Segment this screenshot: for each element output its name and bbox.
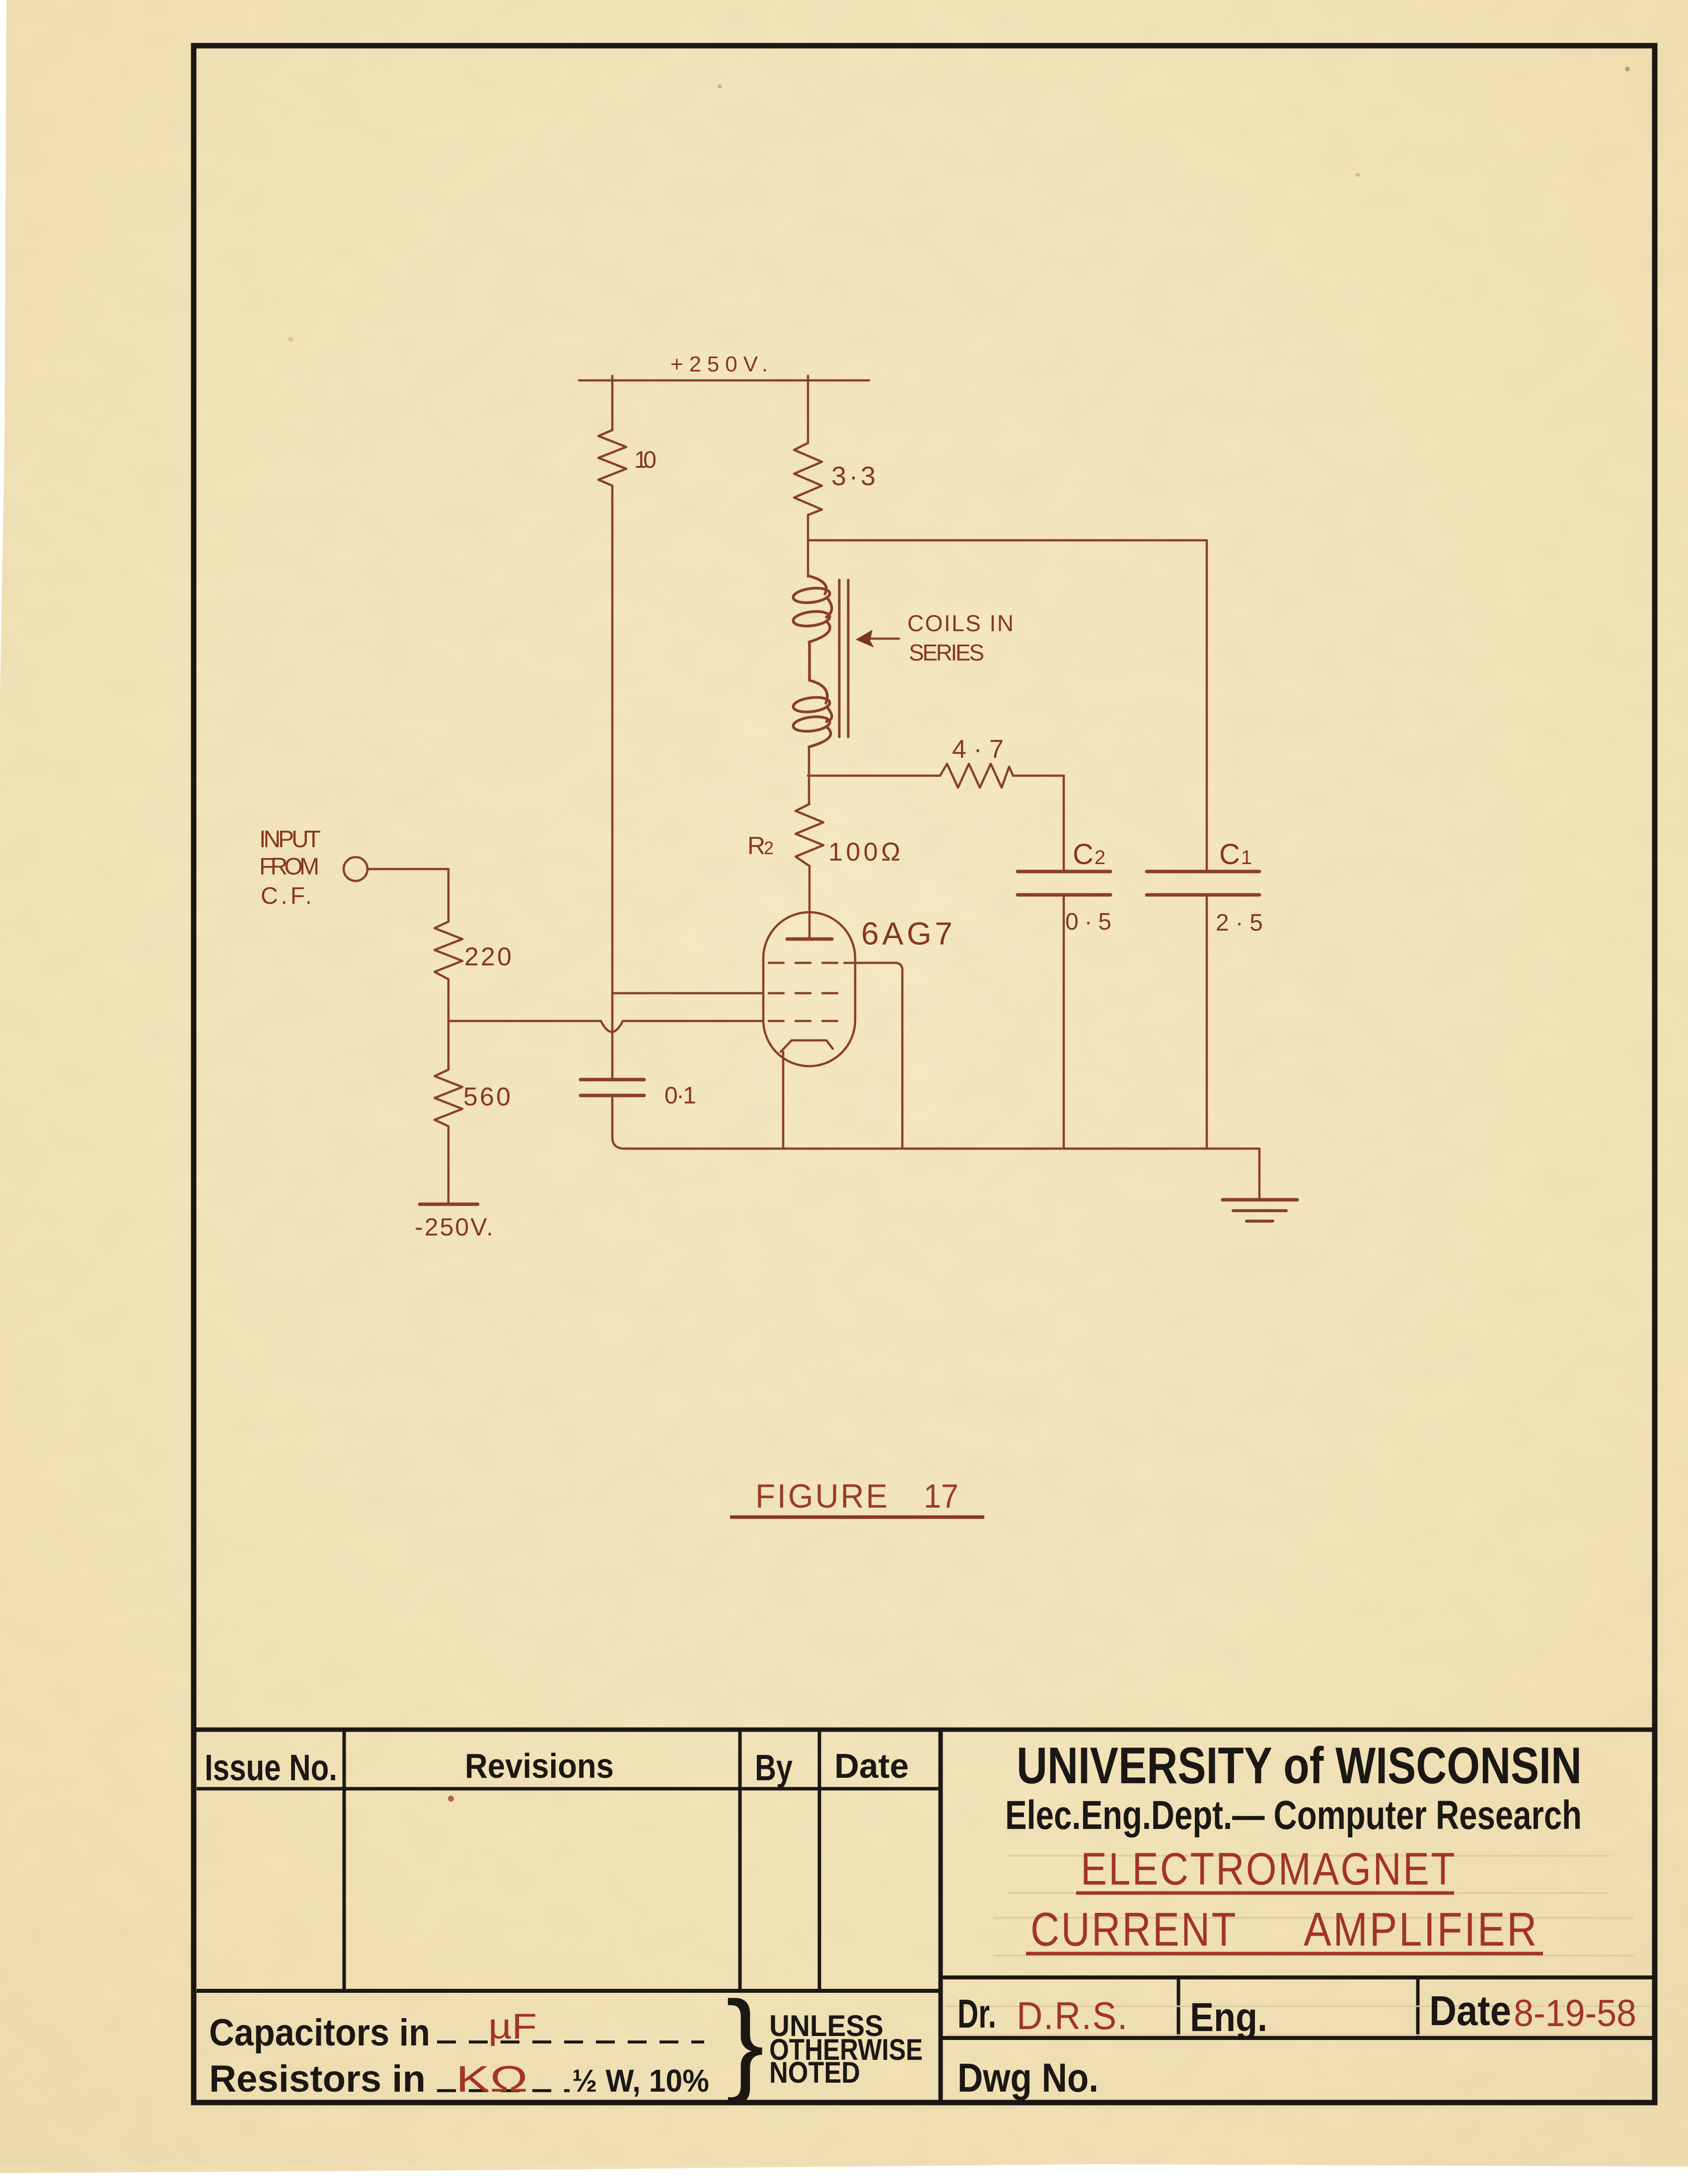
svg-text:AMPLIFIER: AMPLIFIER [1304,1903,1539,1956]
svg-text:220: 220 [464,943,513,971]
svg-text:10: 10 [634,447,658,473]
svg-text:INPUT: INPUT [259,826,322,853]
svg-text:½ W, 10%: ½ W, 10% [572,2063,709,2099]
svg-text:}: } [726,1977,764,2105]
svg-text:FROM: FROM [259,854,320,880]
svg-text:Revisions: Revisions [465,1747,614,1785]
svg-text:FIGURE: FIGURE [755,1477,889,1515]
svg-text:Resistors in: Resistors in [209,2058,426,2100]
svg-text:ELECTROMAGNET: ELECTROMAGNET [1081,1844,1457,1894]
svg-text:8-19-58: 8-19-58 [1514,1992,1636,2035]
svg-text:4·7: 4·7 [952,735,1005,764]
svg-text:3·3: 3·3 [831,461,877,491]
svg-text:6AG7: 6AG7 [861,916,954,951]
svg-text:0·5: 0·5 [1065,909,1112,935]
svg-text:KΩ: KΩ [456,2058,528,2100]
svg-text:µF: µF [488,2007,537,2046]
svg-text:0·1: 0·1 [664,1083,697,1109]
svg-text:2·5: 2·5 [1216,910,1264,936]
svg-text:560: 560 [463,1083,512,1111]
svg-text:Dr.: Dr. [957,1991,996,2037]
svg-text:-250V.: -250V. [415,1213,494,1241]
svg-text:Dwg No.: Dwg No. [957,2055,1099,2101]
svg-text:Capacitors in: Capacitors in [209,2012,430,2054]
svg-text:100Ω: 100Ω [828,838,901,867]
svg-text:Eng.: Eng. [1190,1995,1267,2040]
svg-text:Date: Date [834,1747,909,1785]
svg-text:COILS IN: COILS IN [907,610,1015,636]
svg-text:D.R.S.: D.R.S. [1017,1994,1128,2038]
svg-text:CURRENT: CURRENT [1030,1903,1238,1956]
svg-text:SERIES: SERIES [909,640,985,665]
svg-text:Date: Date [1429,1987,1511,2034]
svg-text:By: By [755,1747,793,1788]
svg-text:NOTED: NOTED [769,2056,860,2089]
svg-text:Issue No.: Issue No. [205,1747,337,1788]
svg-text:Elec.Eng.Dept.— Computer Resea: Elec.Eng.Dept.— Computer Research [1005,1793,1582,1838]
svg-text:UNIVERSITY of WISCONSIN: UNIVERSITY of WISCONSIN [1017,1737,1582,1795]
svg-text:17: 17 [924,1477,958,1515]
svg-text:C.F.: C.F. [261,883,313,909]
